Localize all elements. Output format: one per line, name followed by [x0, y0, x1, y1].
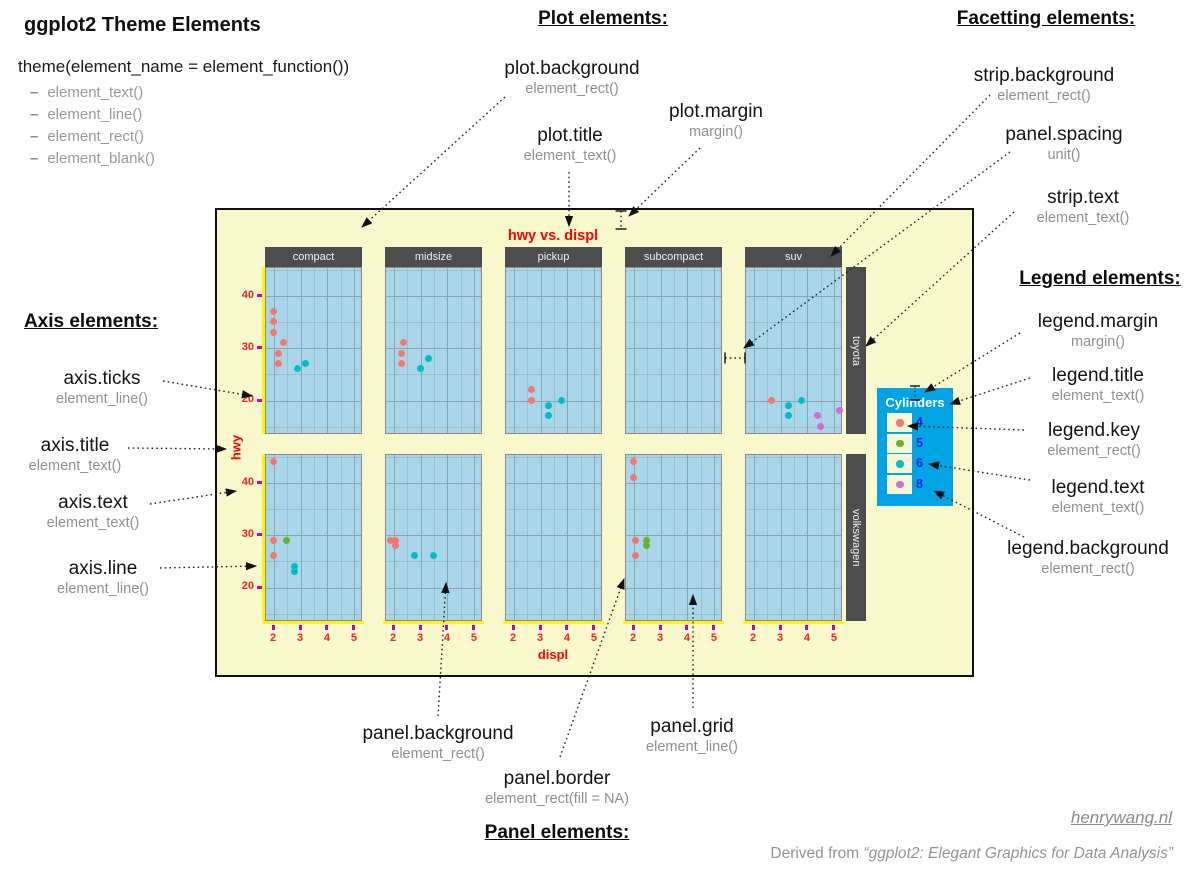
x-axis-line	[263, 621, 364, 624]
x-axis-tick	[325, 625, 328, 630]
panel-grid-minor	[626, 561, 721, 562]
x-axis-tick	[419, 625, 422, 630]
data-point	[270, 318, 277, 325]
list-item: –element_text()	[30, 82, 155, 104]
panel-grid-minor	[626, 322, 721, 323]
panel-grid-major	[626, 588, 721, 589]
panel-grid-minor	[746, 457, 841, 458]
facet-panel-volkswagen-compact	[265, 454, 362, 621]
x-axis-line	[503, 621, 604, 624]
panel-grid-minor	[266, 457, 361, 458]
panel-grid-major	[781, 455, 782, 620]
data-point	[630, 458, 637, 465]
y-axis-tick	[257, 294, 262, 297]
x-axis-tick	[472, 625, 475, 630]
panel-grid-minor	[386, 374, 481, 375]
x-axis-tick	[659, 625, 662, 630]
panel-grid-minor	[527, 455, 528, 620]
x-axis-label: 4	[558, 632, 576, 644]
panel-grid-minor	[407, 455, 408, 620]
list-item: –element_blank()	[30, 148, 155, 170]
legend-key-dot	[896, 481, 904, 489]
panel-grid-major	[266, 535, 361, 536]
theme-syntax: theme(element_name = element_function())	[18, 57, 349, 77]
panel-grid-minor	[674, 268, 675, 433]
panel-grid-major	[626, 296, 721, 297]
callout-plot-background: plot.backgroundelement_rect()	[504, 58, 639, 97]
facet-strip-pickup: pickup	[505, 247, 602, 267]
panel-grid-major	[514, 268, 515, 433]
panel-grid-major	[594, 455, 595, 620]
legend-label-6: 6	[916, 454, 936, 473]
panel-grid-major	[714, 268, 715, 433]
data-point	[302, 360, 309, 367]
y-axis-tick	[257, 481, 262, 484]
data-point	[275, 350, 282, 357]
panel-grid-minor	[266, 509, 361, 510]
data-point	[817, 423, 824, 430]
panel-grid-major	[266, 348, 361, 349]
heading-panel-elements: Panel elements:	[485, 822, 630, 844]
panel-grid-minor	[266, 427, 361, 428]
panel-grid-minor	[746, 614, 841, 615]
facet-panel-volkswagen-pickup	[505, 454, 602, 621]
x-axis-label: 4	[438, 632, 456, 644]
x-axis-label: 5	[465, 632, 483, 644]
panel-grid-minor	[626, 427, 721, 428]
x-axis-tick	[779, 625, 782, 630]
panel-grid-minor	[581, 455, 582, 620]
facet-panel-toyota-suv	[745, 267, 842, 434]
panel-grid-minor	[386, 614, 481, 615]
x-axis-line	[623, 621, 724, 624]
panel-grid-major	[266, 401, 361, 402]
x-axis-tick	[832, 625, 835, 630]
panel-grid-major	[661, 268, 662, 433]
y-axis-label: 40	[223, 289, 254, 301]
panel-grid-major	[634, 268, 635, 433]
legend-label-4: 4	[916, 413, 936, 432]
y-axis-label: 40	[223, 476, 254, 488]
panel-grid-minor	[506, 561, 601, 562]
panel-grid-major	[834, 455, 835, 620]
panel-grid-major	[626, 348, 721, 349]
legend-key-5	[887, 434, 912, 453]
y-axis-title: hwy	[229, 431, 244, 465]
panel-grid-minor	[746, 561, 841, 562]
x-axis-title: displ	[513, 647, 593, 662]
panel-grid-minor	[266, 614, 361, 615]
panel-grid-minor	[674, 455, 675, 620]
panel-grid-minor	[386, 270, 481, 271]
panel-grid-minor	[506, 270, 601, 271]
x-axis-label: 3	[411, 632, 429, 644]
element-function-list: –element_text() –element_line() –element…	[30, 82, 155, 170]
panel-grid-major	[746, 401, 841, 402]
facet-panel-toyota-subcompact	[625, 267, 722, 434]
panel-grid-major	[746, 348, 841, 349]
panel-grid-major	[594, 268, 595, 433]
panel-grid-minor	[554, 455, 555, 620]
x-axis-tick	[512, 625, 515, 630]
y-axis-tick	[257, 399, 262, 402]
x-axis-label: 3	[651, 632, 669, 644]
panel-grid-minor	[314, 455, 315, 620]
facet-strip-suv: suv	[745, 247, 842, 267]
legend-keys	[887, 413, 912, 495]
arrow-plot-margin	[629, 148, 700, 216]
panel-grid-minor	[746, 509, 841, 510]
data-point	[398, 360, 405, 367]
heading-plot-elements: Plot elements:	[538, 8, 668, 30]
panel-grid-major	[754, 268, 755, 433]
panel-grid-minor	[794, 268, 795, 433]
panel-grid-major	[506, 535, 601, 536]
panel-grid-minor	[527, 268, 528, 433]
panel-grid-major	[421, 455, 422, 620]
y-axis-line	[262, 267, 265, 434]
canvas: ggplot2 Theme Elements theme(element_nam…	[0, 0, 1193, 880]
dash-icon: –	[30, 150, 38, 167]
y-axis-tick	[257, 346, 262, 349]
callout-panel-spacing: panel.spacingunit()	[1005, 124, 1122, 163]
callout-panel-border: panel.borderelement_rect(fill = NA)	[485, 768, 629, 807]
panel-grid-minor	[626, 270, 721, 271]
panel-grid-major	[506, 348, 601, 349]
panel-grid-major	[567, 455, 568, 620]
x-axis-label: 2	[264, 632, 282, 644]
panel-grid-major	[447, 455, 448, 620]
x-axis-label: 5	[345, 632, 363, 644]
data-point	[270, 308, 277, 315]
panel-grid-major	[266, 296, 361, 297]
panel-grid-major	[807, 455, 808, 620]
panel-grid-minor	[266, 561, 361, 562]
panel-grid-major	[514, 455, 515, 620]
x-axis-label: 4	[678, 632, 696, 644]
callout-plot-margin: plot.marginmargin()	[669, 101, 763, 140]
x-axis-label: 4	[798, 632, 816, 644]
legend-key-6	[887, 454, 912, 473]
panel-grid-minor	[506, 427, 601, 428]
panel-grid-minor	[581, 268, 582, 433]
data-point	[545, 402, 552, 409]
panel-grid-major	[626, 483, 721, 484]
data-point	[836, 407, 843, 414]
panel-grid-major	[327, 268, 328, 433]
callout-legend-text: legend.textelement_text()	[1052, 477, 1145, 516]
facet-row-strip-toyota: toyota	[846, 267, 866, 434]
panel-grid-minor	[266, 270, 361, 271]
panel-grid-major	[301, 455, 302, 620]
panel-grid-minor	[386, 509, 481, 510]
x-axis-label: 5	[825, 632, 843, 644]
panel-grid-minor	[767, 268, 768, 433]
panel-grid-major	[626, 401, 721, 402]
data-point	[270, 552, 277, 559]
legend-key-dot	[896, 419, 904, 427]
x-axis-tick	[752, 625, 755, 630]
data-point	[785, 412, 792, 419]
callout-legend-margin: legend.marginmargin()	[1038, 311, 1158, 350]
plot-title-text: hwy vs. displ	[363, 228, 743, 244]
panel-grid-minor	[647, 268, 648, 433]
panel-grid-minor	[434, 268, 435, 433]
panel-grid-major	[626, 535, 721, 536]
panel-grid-minor	[746, 427, 841, 428]
callout-strip-background: strip.backgroundelement_rect()	[974, 65, 1114, 104]
panel-grid-minor	[767, 455, 768, 620]
panel-grid-major	[506, 296, 601, 297]
panel-grid-minor	[461, 455, 462, 620]
panel-grid-major	[354, 455, 355, 620]
callout-panel-grid: panel.gridelement_line()	[646, 716, 738, 755]
panel-grid-minor	[746, 322, 841, 323]
data-point	[283, 537, 290, 544]
panel-grid-minor	[821, 455, 822, 620]
x-axis-tick	[685, 625, 688, 630]
panel-grid-major	[506, 401, 601, 402]
data-point	[785, 402, 792, 409]
credit-text: Derived from “ggplot2: Elegant Graphics …	[770, 845, 1173, 863]
panel-grid-minor	[626, 509, 721, 510]
x-axis-tick	[392, 625, 395, 630]
panel-grid-major	[746, 588, 841, 589]
panel-grid-major	[661, 455, 662, 620]
x-axis-label: 5	[705, 632, 723, 644]
legend-label-8: 8	[916, 475, 936, 494]
y-axis-label: 30	[223, 341, 254, 353]
x-axis-label: 2	[384, 632, 402, 644]
facet-panel-volkswagen-subcompact	[625, 454, 722, 621]
dash-icon: –	[30, 106, 38, 123]
x-axis-label: 4	[318, 632, 336, 644]
panel-grid-major	[541, 455, 542, 620]
dash-icon: –	[30, 128, 38, 145]
panel-grid-minor	[341, 268, 342, 433]
panel-grid-minor	[341, 455, 342, 620]
panel-grid-minor	[626, 614, 721, 615]
panel-grid-major	[781, 268, 782, 433]
data-point	[270, 537, 277, 544]
y-axis-label: 20	[223, 393, 254, 405]
heading-facetting-elements: Facetting elements:	[957, 8, 1135, 30]
facet-panel-volkswagen-suv	[745, 454, 842, 621]
panel-grid-major	[746, 535, 841, 536]
panel-grid-minor	[626, 374, 721, 375]
callout-legend-background: legend.backgroundelement_rect()	[1007, 538, 1169, 577]
callout-axis-title: axis.titleelement_text()	[29, 435, 122, 474]
legend-label-5: 5	[916, 434, 936, 453]
panel-grid-minor	[386, 427, 481, 428]
x-axis-tick	[632, 625, 635, 630]
panel-grid-minor	[626, 457, 721, 458]
panel-grid-major	[386, 401, 481, 402]
x-axis-label: 3	[771, 632, 789, 644]
panel-grid-major	[266, 483, 361, 484]
data-point	[291, 568, 298, 575]
data-point	[398, 350, 405, 357]
panel-grid-major	[386, 535, 481, 536]
panel-grid-minor	[746, 270, 841, 271]
panel-grid-major	[327, 455, 328, 620]
data-point	[630, 474, 637, 481]
legend-key-4	[887, 413, 912, 432]
panel-grid-minor	[554, 268, 555, 433]
y-axis-label: 20	[223, 580, 254, 592]
data-point	[643, 542, 650, 549]
dash-icon: –	[30, 84, 38, 101]
page-title: ggplot2 Theme Elements	[24, 14, 261, 37]
panel-grid-minor	[506, 457, 601, 458]
panel-grid-major	[506, 588, 601, 589]
panel-grid-minor	[386, 457, 481, 458]
panel-grid-major	[746, 483, 841, 484]
facet-row-strip-volkswagen: volkswagen	[846, 454, 866, 621]
x-axis-tick	[712, 625, 715, 630]
x-axis-tick	[352, 625, 355, 630]
x-axis-label: 2	[504, 632, 522, 644]
panel-grid-minor	[314, 268, 315, 433]
facet-panel-toyota-pickup	[505, 267, 602, 434]
x-axis-tick	[539, 625, 542, 630]
y-axis-tick	[257, 586, 262, 589]
panel-grid-minor	[407, 268, 408, 433]
data-point	[558, 397, 565, 404]
data-point	[632, 537, 639, 544]
panel-grid-major	[386, 483, 481, 484]
callout-legend-title: legend.titleelement_text()	[1052, 365, 1145, 404]
x-axis-label: 2	[624, 632, 642, 644]
y-axis-label: 30	[223, 528, 254, 540]
panel-grid-major	[386, 588, 481, 589]
callout-axis-ticks: axis.tickselement_line()	[56, 368, 148, 407]
x-axis-label: 5	[585, 632, 603, 644]
x-axis-line	[383, 621, 484, 624]
legend-key-dot	[896, 440, 904, 448]
callout-axis-text: axis.textelement_text()	[47, 492, 140, 531]
data-point	[798, 397, 805, 404]
panel-grid-major	[274, 268, 275, 433]
x-axis-label: 3	[531, 632, 549, 644]
x-axis-label: 3	[291, 632, 309, 644]
panel-grid-major	[266, 588, 361, 589]
legend-key-dot	[896, 460, 904, 468]
data-point	[275, 360, 282, 367]
legend-key-8	[887, 475, 912, 494]
panel-grid-minor	[821, 268, 822, 433]
list-item: –element_line()	[30, 104, 155, 126]
author-site-link[interactable]: henrywang.nl	[1071, 808, 1172, 828]
callout-strip-text: strip.textelement_text()	[1037, 187, 1130, 226]
x-axis-tick	[805, 625, 808, 630]
heading-axis-elements: Axis elements:	[24, 311, 158, 333]
data-point	[417, 365, 424, 372]
panel-grid-major	[447, 268, 448, 433]
panel-grid-minor	[794, 455, 795, 620]
panel-grid-minor	[434, 455, 435, 620]
panel-grid-major	[394, 268, 395, 433]
panel-grid-minor	[266, 322, 361, 323]
panel-grid-major	[687, 455, 688, 620]
plot-background-rect: hwy vs. displ hwy displ Cylinders 4568 c…	[215, 208, 974, 677]
panel-grid-minor	[506, 614, 601, 615]
panel-grid-major	[474, 268, 475, 433]
legend: Cylinders 4568	[877, 388, 953, 506]
facet-strip-midsize: midsize	[385, 247, 482, 267]
panel-grid-minor	[506, 374, 601, 375]
x-axis-label: 2	[744, 632, 762, 644]
y-axis-line	[262, 454, 265, 621]
data-point	[545, 412, 552, 419]
panel-grid-major	[567, 268, 568, 433]
panel-grid-major	[506, 483, 601, 484]
x-axis-line	[743, 621, 844, 624]
heading-legend-elements: Legend elements:	[1019, 268, 1181, 290]
x-axis-tick	[592, 625, 595, 630]
panel-grid-minor	[701, 455, 702, 620]
panel-grid-minor	[506, 509, 601, 510]
panel-grid-major	[754, 455, 755, 620]
data-point	[425, 355, 432, 362]
list-item: –element_rect()	[30, 126, 155, 148]
facet-strip-subcompact: subcompact	[625, 247, 722, 267]
panel-grid-major	[421, 268, 422, 433]
panel-grid-minor	[701, 268, 702, 433]
legend-title-text: Cylinders	[877, 395, 953, 410]
x-axis-tick	[445, 625, 448, 630]
panel-grid-minor	[386, 561, 481, 562]
data-point	[270, 458, 277, 465]
panel-grid-minor	[506, 322, 601, 323]
panel-grid-major	[746, 296, 841, 297]
data-point	[270, 329, 277, 336]
x-axis-tick	[299, 625, 302, 630]
callout-panel-background: panel.backgroundelement_rect()	[362, 723, 513, 762]
panel-grid-major	[714, 455, 715, 620]
callout-axis-line: axis.lineelement_line()	[57, 558, 149, 597]
panel-grid-minor	[287, 268, 288, 433]
panel-grid-minor	[266, 374, 361, 375]
panel-grid-major	[474, 455, 475, 620]
panel-grid-major	[541, 268, 542, 433]
panel-grid-major	[301, 268, 302, 433]
panel-grid-major	[687, 268, 688, 433]
facet-strip-compact: compact	[265, 247, 362, 267]
callout-legend-key: legend.keyelement_rect()	[1047, 420, 1140, 459]
panel-grid-minor	[386, 322, 481, 323]
panel-grid-major	[354, 268, 355, 433]
panel-grid-minor	[746, 374, 841, 375]
panel-grid-major	[386, 296, 481, 297]
x-axis-tick	[272, 625, 275, 630]
y-axis-tick	[257, 533, 262, 536]
arrow-axis-title	[128, 448, 226, 449]
panel-grid-major	[807, 268, 808, 433]
panel-grid-minor	[461, 268, 462, 433]
facet-panel-volkswagen-midsize	[385, 454, 482, 621]
callout-plot-title: plot.titleelement_text()	[524, 125, 617, 164]
x-axis-tick	[565, 625, 568, 630]
